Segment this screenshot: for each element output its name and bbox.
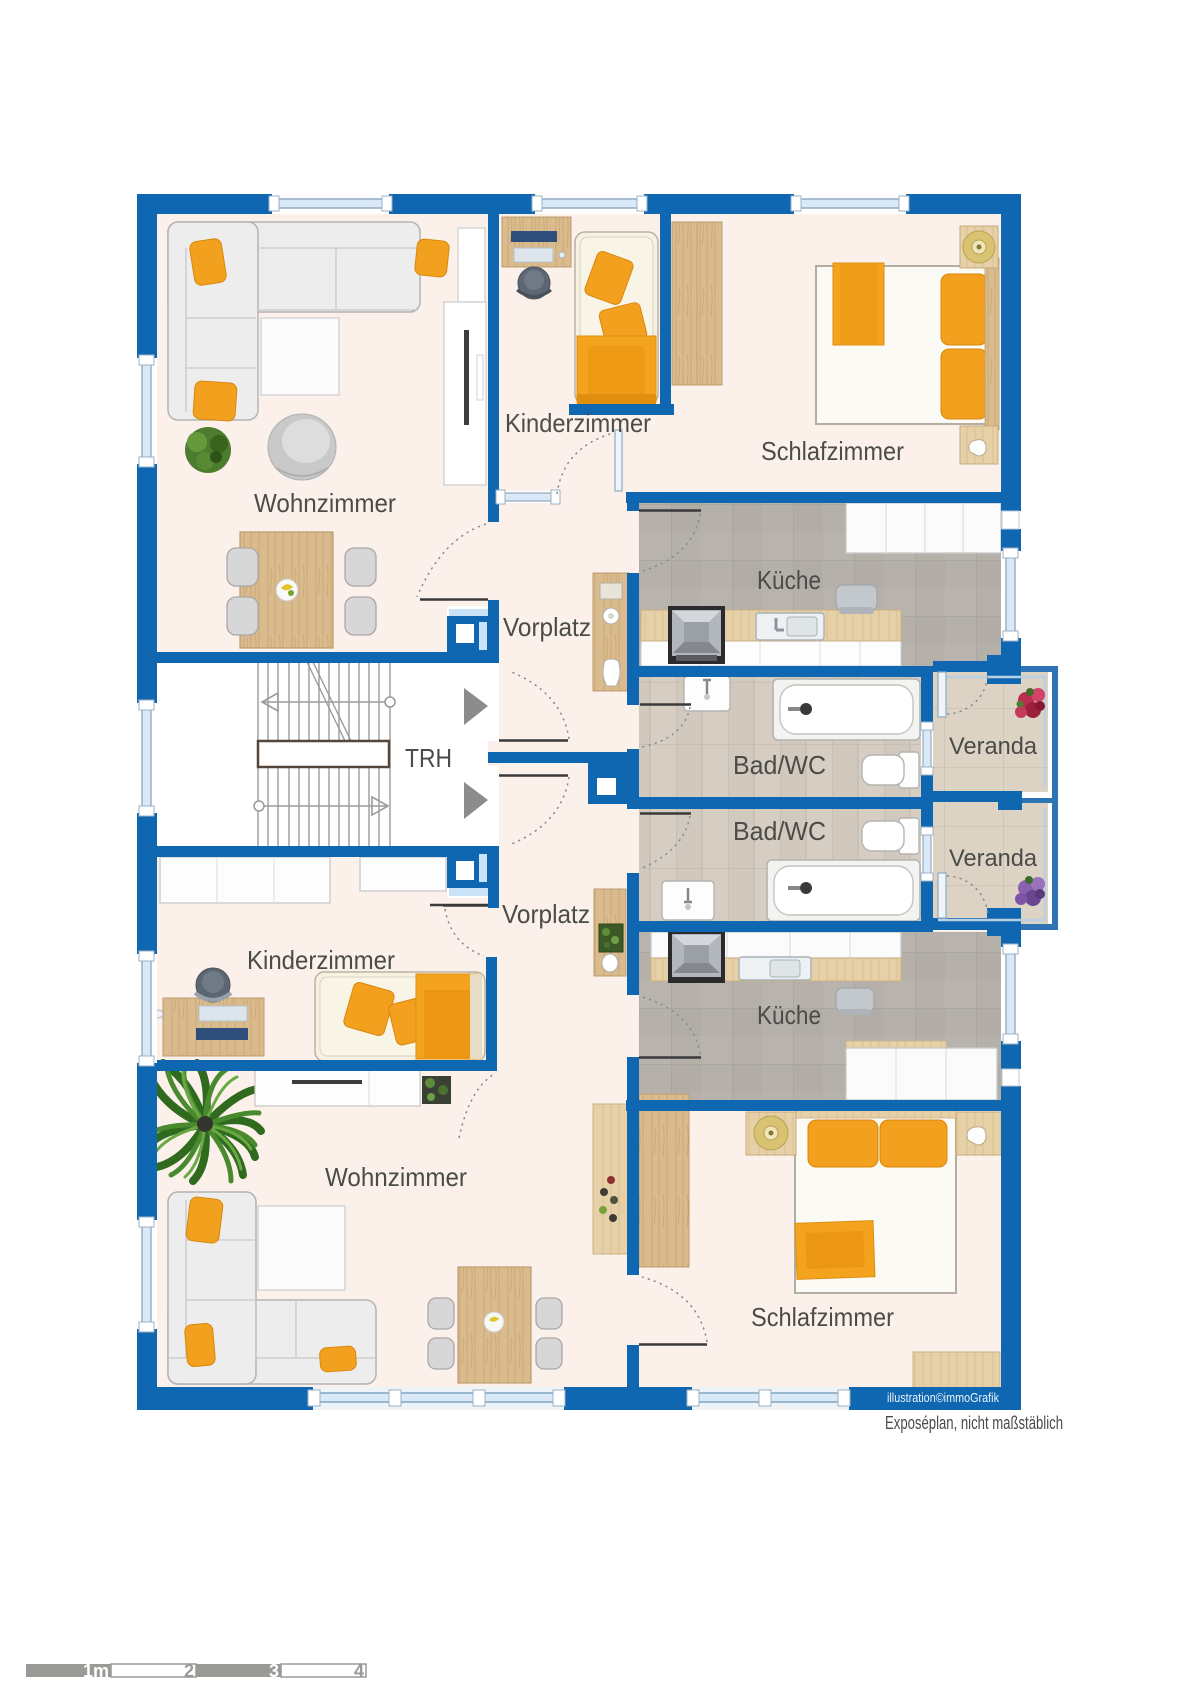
svg-text:4: 4: [354, 1661, 364, 1681]
svg-text:Veranda: Veranda: [949, 733, 1038, 760]
svg-text:Kinderzimmer: Kinderzimmer: [247, 945, 395, 975]
svg-text:Schlafzimmer: Schlafzimmer: [761, 436, 904, 466]
svg-text:Kinderzimmer: Kinderzimmer: [505, 408, 651, 438]
svg-text:Vorplatz: Vorplatz: [503, 612, 591, 642]
svg-text:Bad/WC: Bad/WC: [733, 816, 826, 846]
svg-text:Bad/WC: Bad/WC: [733, 750, 826, 780]
svg-text:3: 3: [269, 1661, 279, 1681]
svg-text:Vorplatz: Vorplatz: [502, 899, 590, 929]
svg-text:TRH: TRH: [405, 743, 452, 773]
svg-text:Küche: Küche: [757, 565, 821, 595]
svg-text:Veranda: Veranda: [949, 845, 1038, 872]
svg-text:2: 2: [184, 1661, 194, 1681]
svg-text:illustration©immoGrafik: illustration©immoGrafik: [887, 1390, 999, 1405]
svg-text:Wohnzimmer: Wohnzimmer: [325, 1162, 467, 1192]
svg-text:Exposéplan, nicht maßstäblich: Exposéplan, nicht maßstäblich: [885, 1413, 1063, 1433]
svg-text:Wohnzimmer: Wohnzimmer: [254, 488, 396, 518]
svg-text:Küche: Küche: [757, 1000, 821, 1030]
svg-text:Schlafzimmer: Schlafzimmer: [751, 1302, 894, 1332]
svg-text:1m: 1m: [83, 1661, 109, 1681]
